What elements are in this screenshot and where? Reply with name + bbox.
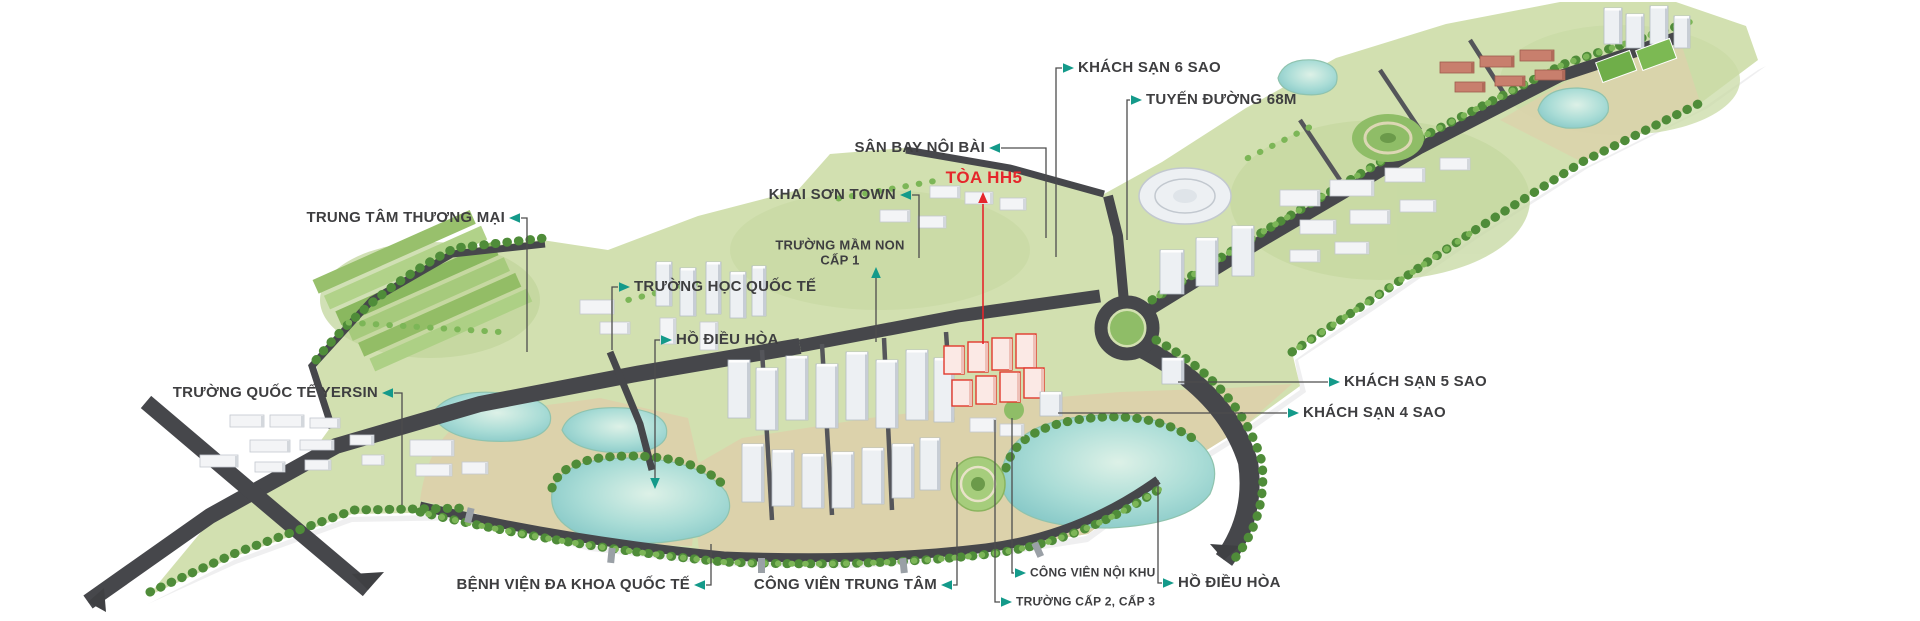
map-building — [1232, 226, 1254, 276]
map-building — [728, 360, 750, 418]
map-building — [1300, 220, 1336, 234]
map-building — [772, 450, 794, 506]
circular-landmark-building — [1139, 168, 1231, 224]
map-building — [200, 455, 238, 467]
map-building — [1335, 242, 1369, 254]
map-building — [1290, 250, 1320, 262]
hh5-highlight-building — [992, 338, 1012, 370]
map-building — [1440, 158, 1470, 170]
map-building — [300, 440, 334, 450]
map-building — [1520, 50, 1554, 61]
map-building — [255, 462, 285, 472]
map-building — [350, 435, 374, 445]
map-building — [1385, 168, 1425, 182]
map-building — [880, 210, 910, 222]
map-building — [970, 418, 996, 432]
map-building — [756, 368, 778, 430]
map-building — [930, 186, 960, 198]
map-building — [250, 440, 290, 452]
map-building — [1626, 14, 1644, 48]
map-building — [1160, 250, 1184, 294]
hh5-highlight-building — [944, 346, 964, 374]
map-building — [892, 444, 914, 498]
hh5-highlight-building — [1016, 334, 1036, 368]
map-building — [1440, 62, 1474, 73]
hh5-highlight-building — [968, 342, 988, 372]
hh5-highlight-building — [1000, 372, 1020, 402]
map-building — [816, 364, 838, 428]
map-building — [1196, 238, 1218, 286]
map-building — [660, 318, 676, 344]
map-building — [832, 452, 854, 508]
map-building — [1455, 82, 1485, 92]
map-building — [270, 415, 304, 427]
hh5-highlight-building — [952, 380, 972, 406]
map-building — [876, 360, 898, 428]
map-building — [786, 356, 808, 420]
map-building — [906, 350, 928, 420]
map-building — [1604, 8, 1622, 44]
map-building — [1280, 190, 1320, 206]
map-building — [305, 460, 331, 470]
map-building — [230, 415, 264, 427]
map-building — [706, 262, 721, 314]
map-building — [580, 300, 614, 314]
map-building — [416, 464, 452, 476]
map-building — [656, 262, 672, 306]
map-building — [700, 322, 718, 350]
map-building — [1040, 392, 1062, 416]
map-building — [1350, 210, 1390, 224]
map-building — [362, 455, 384, 465]
map-building — [1674, 16, 1690, 48]
map-building — [846, 352, 868, 420]
map-building — [802, 454, 824, 508]
map-building — [1162, 358, 1184, 384]
map-building — [862, 448, 884, 504]
map-building — [680, 268, 696, 316]
map-building — [918, 216, 946, 228]
map-building — [1000, 198, 1026, 210]
map-building — [1400, 200, 1436, 212]
masterplan-page: { "colors": { "accent_teal": "#149a8a", … — [0, 0, 1920, 621]
map-building — [965, 192, 993, 204]
map-building — [462, 462, 488, 474]
map-building — [410, 440, 454, 456]
map-building — [1330, 180, 1374, 196]
map-building — [1000, 424, 1024, 436]
hh5-highlight-building — [976, 376, 996, 404]
map-building — [730, 272, 746, 318]
map-building — [1495, 76, 1525, 86]
map-building — [1535, 70, 1565, 80]
map-building — [600, 322, 630, 334]
masterplan-map — [0, 0, 1920, 621]
lake-ne-2 — [1278, 60, 1337, 95]
map-building — [920, 438, 940, 490]
circular-park — [1352, 114, 1424, 162]
map-building — [752, 266, 766, 316]
map-building — [1480, 56, 1514, 67]
map-building — [1650, 6, 1668, 44]
map-building — [310, 418, 340, 428]
roundabout-green — [1110, 311, 1144, 345]
map-building — [742, 444, 764, 502]
